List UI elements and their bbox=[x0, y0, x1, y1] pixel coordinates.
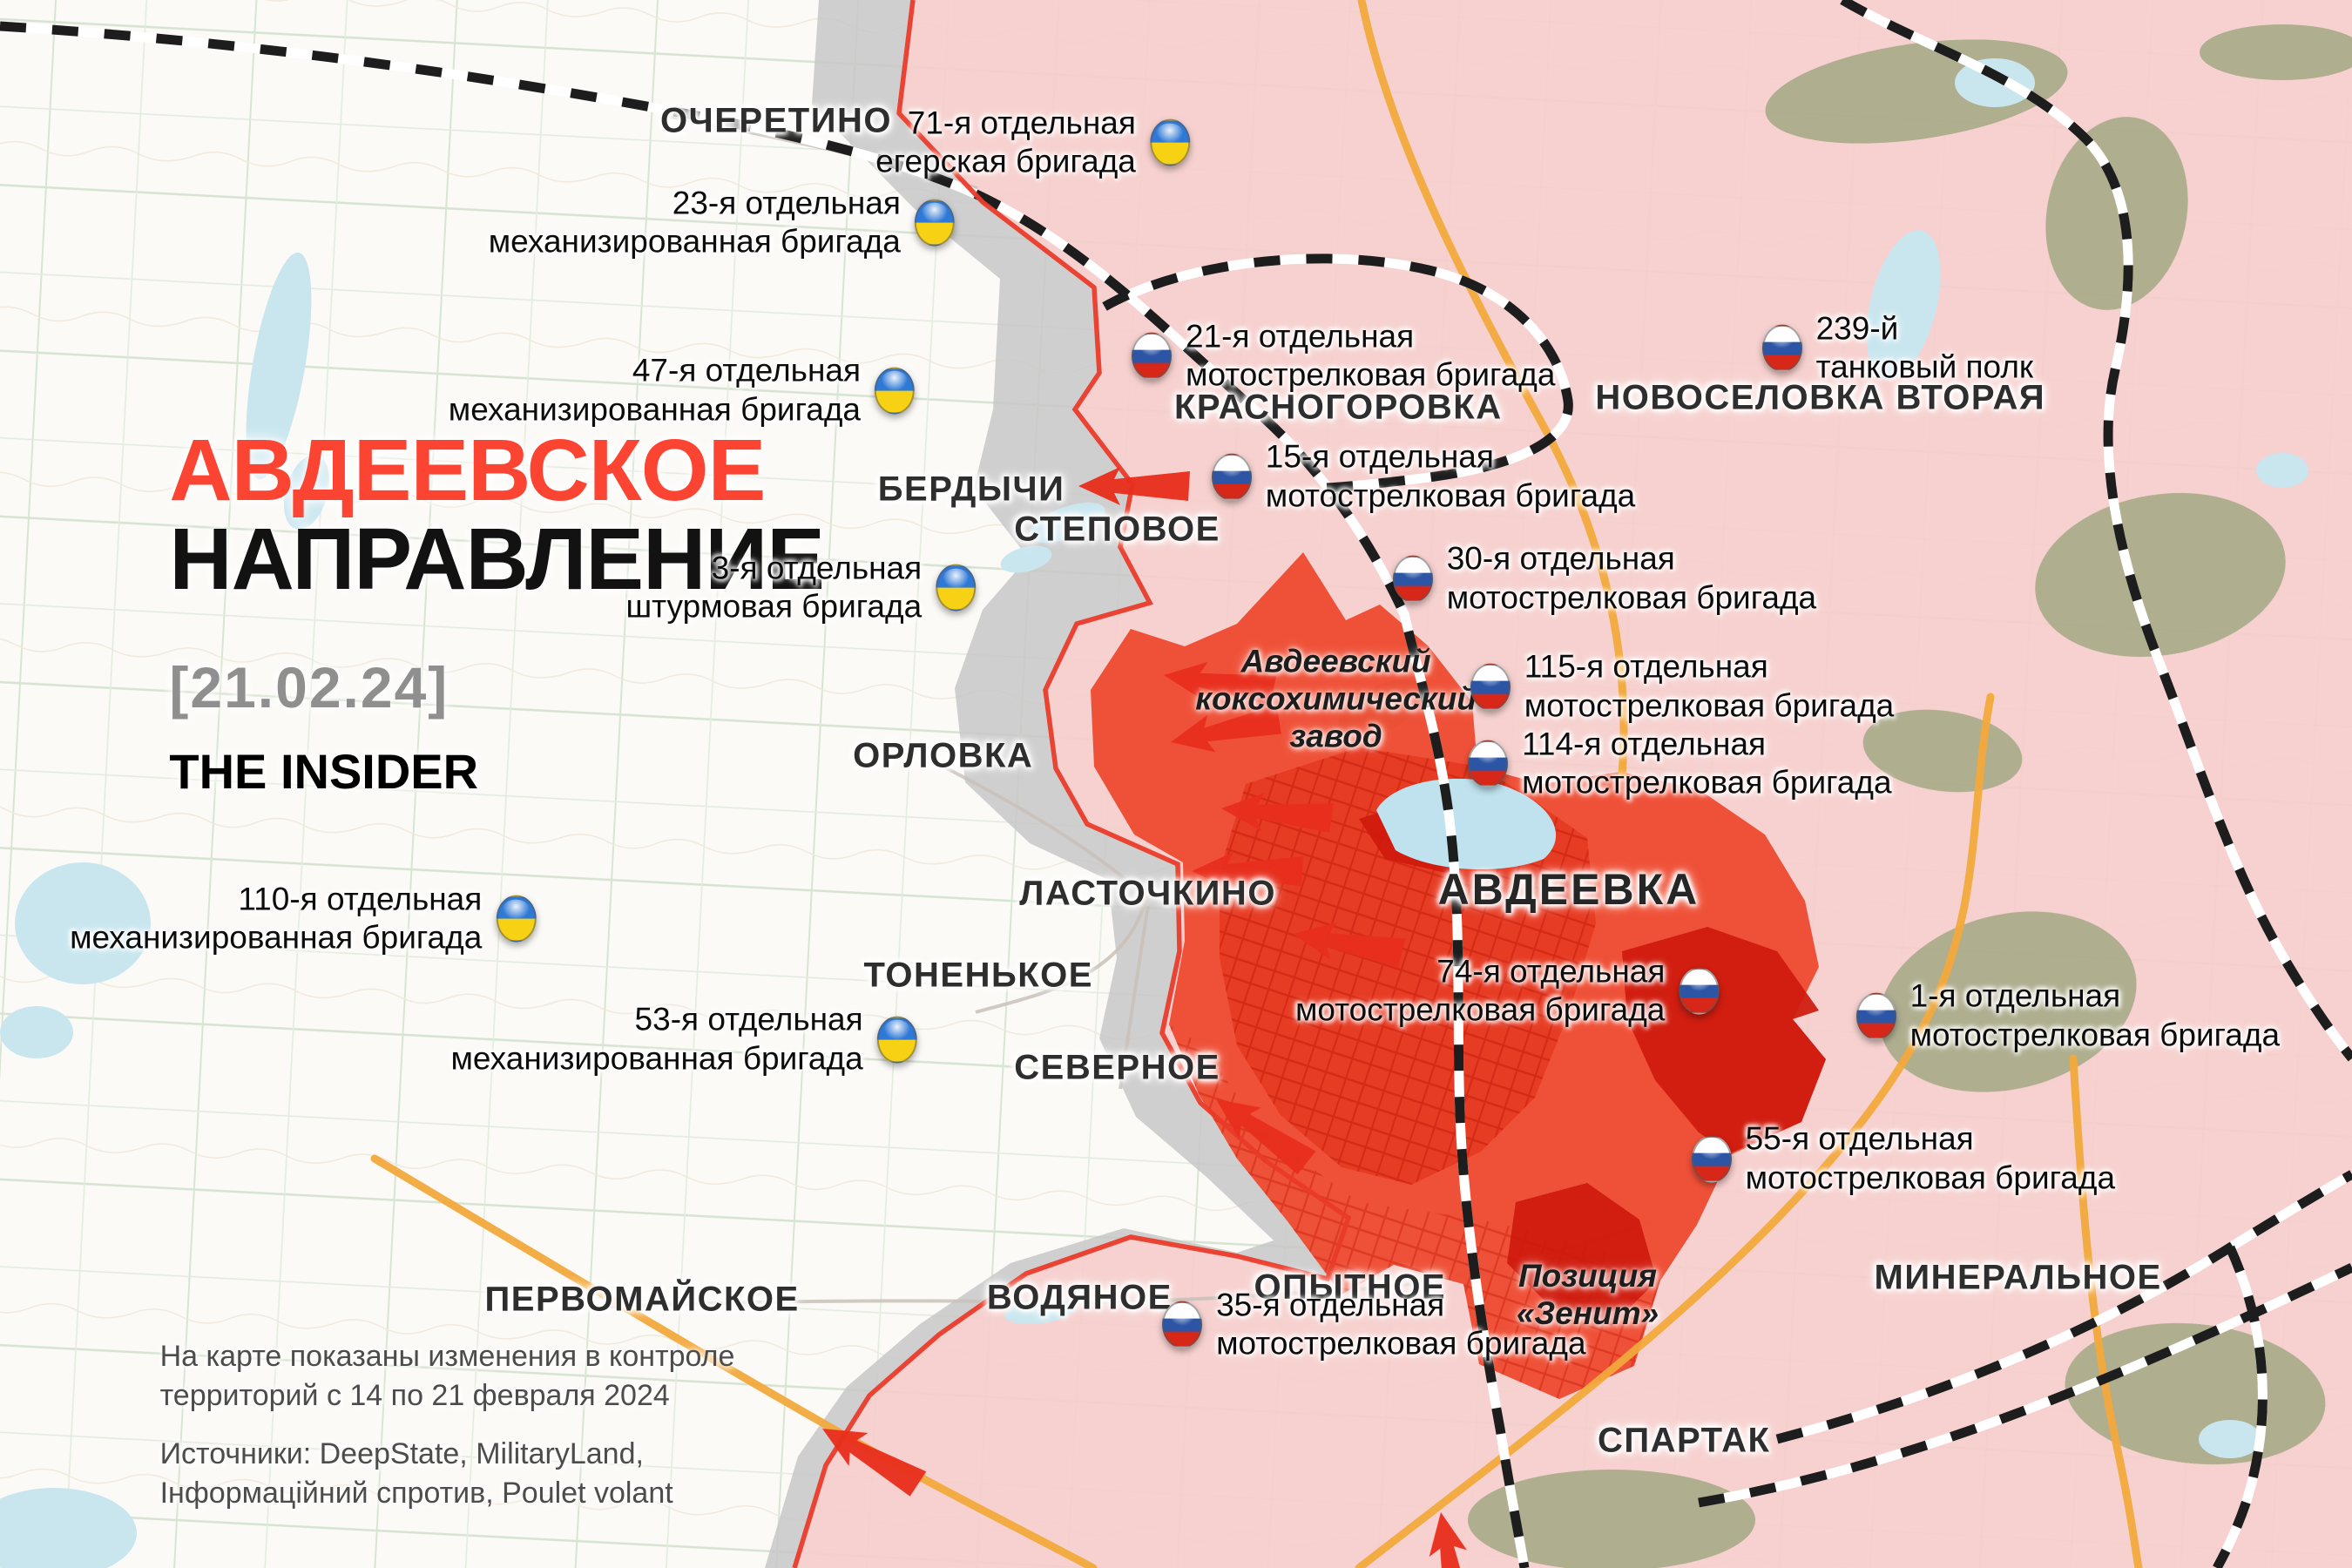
city-label-vodyanoe: ВОДЯНОЕ bbox=[987, 1279, 1173, 1318]
city-label-mineralnoe: МИНЕРАЛЬНОЕ bbox=[1875, 1259, 2162, 1298]
unit-ru-21: 21-я отдельнаямотострелковая бригада bbox=[1132, 317, 1555, 395]
page-title-line1: АВДЕЕВСКОЕ bbox=[169, 427, 824, 514]
unit-ru-115: 115-я отдельнаямотострелковая бригада bbox=[1470, 648, 1894, 726]
ukraine-flag-icon bbox=[875, 367, 915, 414]
city-label-lastochkino: ЛАСТОЧКИНО bbox=[1019, 875, 1276, 914]
unit-ua-71: 71-я отдельнаяегерская бригада bbox=[875, 104, 1190, 181]
ukraine-flag-icon bbox=[877, 1016, 917, 1063]
ukraine-flag-icon bbox=[915, 199, 955, 247]
unit-ru-15: 15-я отдельнаямотострелковая бригада bbox=[1212, 438, 1635, 516]
russia-flag-icon bbox=[1692, 1135, 1732, 1182]
city-label-berdychi: БЕРДЫЧИ bbox=[878, 470, 1065, 509]
russia-flag-icon bbox=[1470, 663, 1511, 710]
brand-logo: THE INSIDER bbox=[169, 743, 824, 800]
unit-ru-239: 239-йтанковый полк bbox=[1762, 309, 2034, 387]
unit-ru-30: 30-я отдельнаямотострелковая бригада bbox=[1393, 540, 1816, 618]
unit-ua-110: 110-я отдельнаямеханизированная бригада bbox=[70, 880, 536, 957]
unit-ua-3: 3-я отдельнаяштурмовая бригада bbox=[625, 550, 976, 627]
city-label-spartak: СПАРТАК bbox=[1598, 1422, 1770, 1461]
ukraine-flag-icon bbox=[936, 564, 976, 612]
unit-ru-35: 35-я отдельнаямотострелковая бригада bbox=[1162, 1287, 1585, 1364]
unit-ua-23: 23-я отдельнаямеханизированная бригада bbox=[489, 184, 955, 261]
city-label-ocheretino: ОЧЕРЕТИНО bbox=[660, 101, 892, 140]
russia-flag-icon bbox=[1132, 333, 1172, 380]
footer-sources: Источники: DeepState, MilitaryLand, Інфо… bbox=[160, 1435, 735, 1513]
city-label-avdeevka: АВДЕЕВКА bbox=[1438, 864, 1700, 915]
russia-flag-icon bbox=[1393, 555, 1433, 602]
unit-ru-55: 55-я отдельнаямотострелковая бригада bbox=[1692, 1120, 2115, 1198]
city-label-severnoe: СЕВЕРНОЕ bbox=[1014, 1048, 1220, 1087]
unit-ua-53: 53-я отдельнаямеханизированная бригада bbox=[450, 1001, 916, 1078]
footer-notes: На карте показаны изменения в контроле т… bbox=[160, 1337, 735, 1532]
unit-ru-1: 1-я отдельнаямотострелковая бригада bbox=[1856, 977, 2280, 1055]
russia-flag-icon bbox=[1679, 968, 1719, 1015]
city-label-tonenkoe: ТОНЕНЬКОЕ bbox=[863, 956, 1092, 995]
footer-note: На карте показаны изменения в контроле т… bbox=[160, 1337, 735, 1416]
ukraine-flag-icon bbox=[496, 896, 536, 943]
russia-flag-icon bbox=[1212, 453, 1252, 500]
city-label-stepovoe: СТЕПОВОЕ bbox=[1014, 510, 1220, 550]
landmark-label-coke-plant: Авдеевский коксохимический завод bbox=[1195, 643, 1477, 755]
city-label-orlovka: ОРЛОВКА bbox=[853, 736, 1033, 775]
map-page: АВДЕЕВСКОЕ НАПРАВЛЕНИЕ [21.02.24] THE IN… bbox=[0, 0, 2352, 1568]
map-date: [21.02.24] bbox=[169, 654, 824, 720]
russia-flag-icon bbox=[1762, 325, 1802, 372]
unit-ua-47: 47-я отдельнаямеханизированная бригада bbox=[449, 352, 915, 429]
ukraine-flag-icon bbox=[1150, 119, 1190, 166]
russia-flag-icon bbox=[1856, 992, 1896, 1039]
unit-ru-74: 74-я отдельнаямотострелковая бригада bbox=[1295, 952, 1719, 1030]
russia-flag-icon bbox=[1468, 740, 1508, 787]
unit-ru-114: 114-я отдельнаямотострелковая бригада bbox=[1468, 725, 1891, 802]
russia-flag-icon bbox=[1162, 1301, 1202, 1348]
city-label-pervomayskoe: ПЕРВОМАЙСКОЕ bbox=[485, 1281, 800, 1320]
